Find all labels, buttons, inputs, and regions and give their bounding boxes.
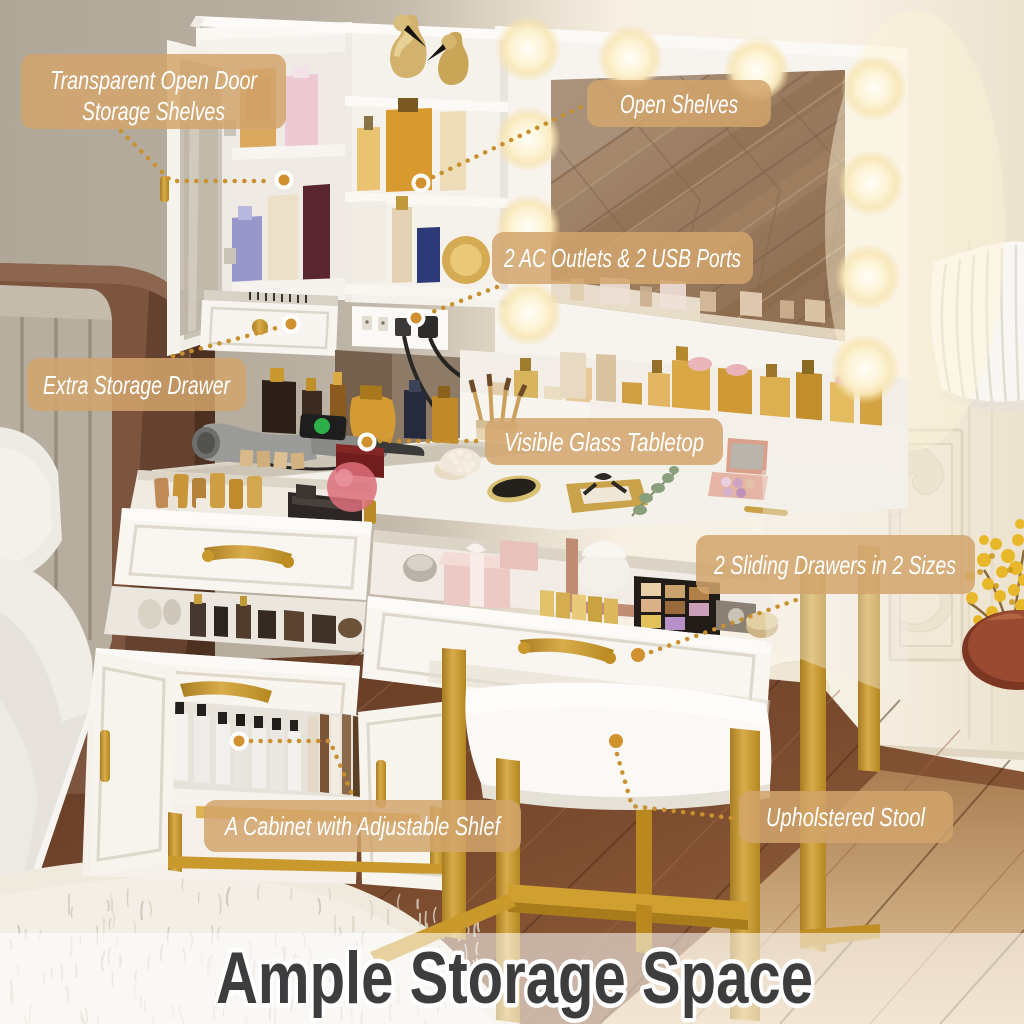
svg-text:Storage Shelves: Storage Shelves — [82, 96, 225, 126]
svg-text:2 AC Outlets & 2 USB Ports: 2 AC Outlets & 2 USB Ports — [503, 243, 741, 273]
svg-text:2 Sliding Drawers in 2 Sizes: 2 Sliding Drawers in 2 Sizes — [713, 550, 956, 580]
svg-text:Upholstered Stool: Upholstered Stool — [766, 802, 926, 832]
svg-text:Open Shelves: Open Shelves — [620, 89, 738, 119]
svg-text:Visible Glass Tabletop: Visible Glass Tabletop — [504, 427, 704, 457]
svg-text:Transparent Open Door: Transparent Open Door — [50, 65, 258, 95]
svg-text:Ample Storage Space: Ample Storage Space — [216, 938, 813, 1019]
svg-text:A Cabinet with Adjustable Shle: A Cabinet with Adjustable Shlef — [223, 811, 502, 841]
svg-text:Extra Storage Drawer: Extra Storage Drawer — [43, 370, 231, 400]
